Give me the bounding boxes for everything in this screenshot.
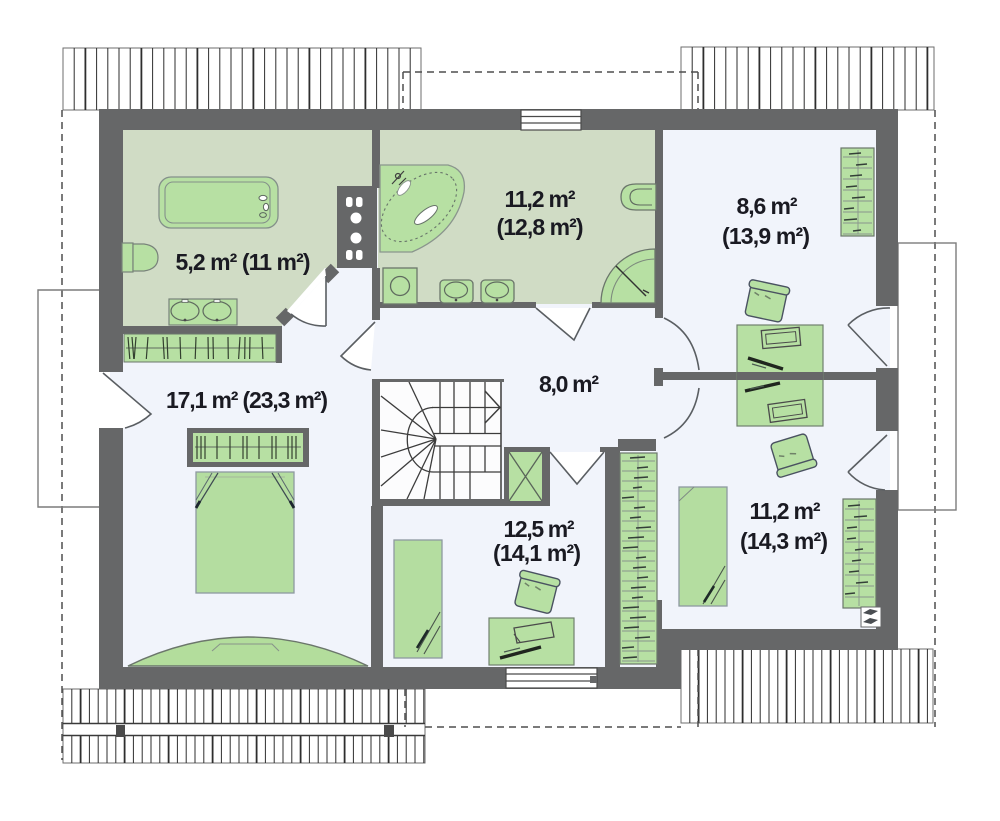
- svg-text:12,5 m²: 12,5 m²: [504, 516, 575, 542]
- svg-text:(12,8 m²): (12,8 m²): [497, 214, 584, 240]
- svg-text:8,6 m²: 8,6 m²: [737, 193, 798, 219]
- svg-text:(14,1 m²): (14,1 m²): [493, 540, 581, 566]
- svg-text:(14,3 m²): (14,3 m²): [740, 528, 828, 554]
- svg-text:(13,9 m²): (13,9 m²): [722, 223, 810, 249]
- svg-text:11,2 m²: 11,2 m²: [750, 498, 821, 524]
- svg-text:5,2 m² (11 m²): 5,2 m² (11 m²): [176, 249, 311, 275]
- svg-text:17,1 m² (23,3 m²): 17,1 m² (23,3 m²): [166, 387, 328, 413]
- svg-text:11,2 m²: 11,2 m²: [505, 186, 576, 212]
- svg-text:8,0 m²: 8,0 m²: [539, 371, 599, 397]
